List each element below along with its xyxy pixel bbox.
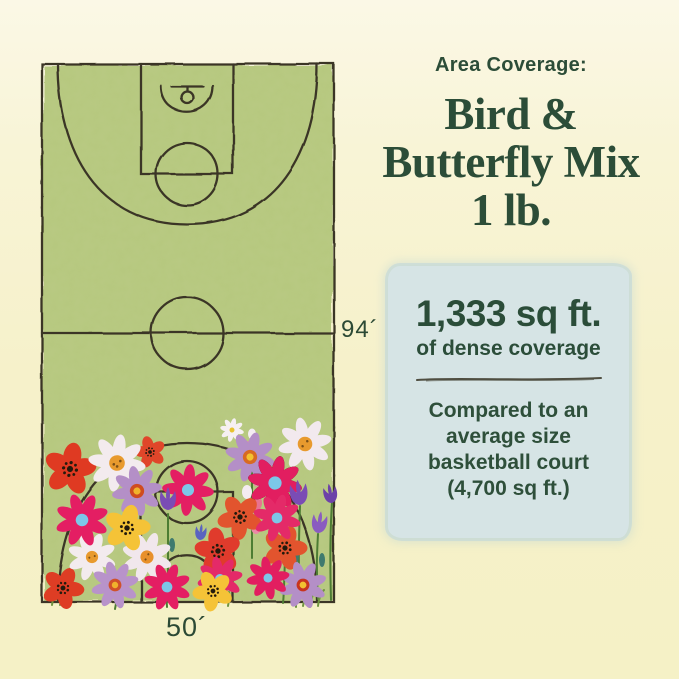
header: Area Coverage: Bird & Butterfly Mix 1 lb… [352,54,670,234]
flower-daisy [273,412,337,476]
court-width-label: 50´ [166,612,208,643]
flower-yellow [184,563,241,620]
eyebrow-text: Area Coverage: [352,54,670,77]
flower-cosmos [136,556,198,618]
flower-spike [242,429,262,535]
flower-crocus [194,523,207,540]
court-lines [42,64,334,602]
flower-stems [115,433,332,609]
flower-yellow [97,499,157,557]
flower-lavender [82,552,148,618]
flower-poppy [34,559,93,617]
comparison-line-1: Compared to an [388,398,629,424]
flower-lavender [273,555,333,615]
hand-drawn-divider [414,375,604,384]
flower-poppy [255,519,314,577]
flower-cosmos [160,462,216,518]
flower-poppy [38,438,102,500]
flower-daisy [84,430,149,495]
flower-crocus [310,510,328,534]
flower-poppy [129,432,170,472]
flower-lavender [108,462,166,520]
flower-cosmos [48,486,117,555]
flower-crocus [289,479,309,506]
flower-cosmos [193,552,247,606]
coverage-card: 1,333 sq ft. of dense coverage Compared … [388,266,629,538]
coverage-area-value: 1,333 sq ft. [388,293,629,335]
flower-daisy [61,526,124,589]
comparison-line-4: (4,700 sq ft.) [388,476,629,502]
flower-bed [34,412,339,619]
flower-poppy [207,484,274,550]
flower-poppy [190,524,246,578]
flower-daisy [113,523,181,591]
comparison-line-2: average size [388,424,629,450]
infographic-canvas: 94´ 50´ Area Coverage: Bird & Butterfly … [0,0,679,679]
title-line-2: Butterfly Mix [352,138,670,186]
flower-cosmos [244,485,310,551]
flower-crocus [160,487,176,510]
flower-lavender [219,426,281,488]
flower-daisy [218,416,246,444]
coverage-description: of dense coverage [388,335,629,362]
flower-cosmos [238,548,298,608]
comparison-line-3: basketball court [388,450,629,476]
court-surface [43,65,333,601]
court-length-label: 94´ [341,316,379,344]
title-line-3: 1 lb. [352,186,670,234]
grass-tufts [52,586,324,607]
flower-crocus [322,483,339,505]
flower-cosmos [243,451,308,516]
title-line-1: Bird & [352,90,670,138]
